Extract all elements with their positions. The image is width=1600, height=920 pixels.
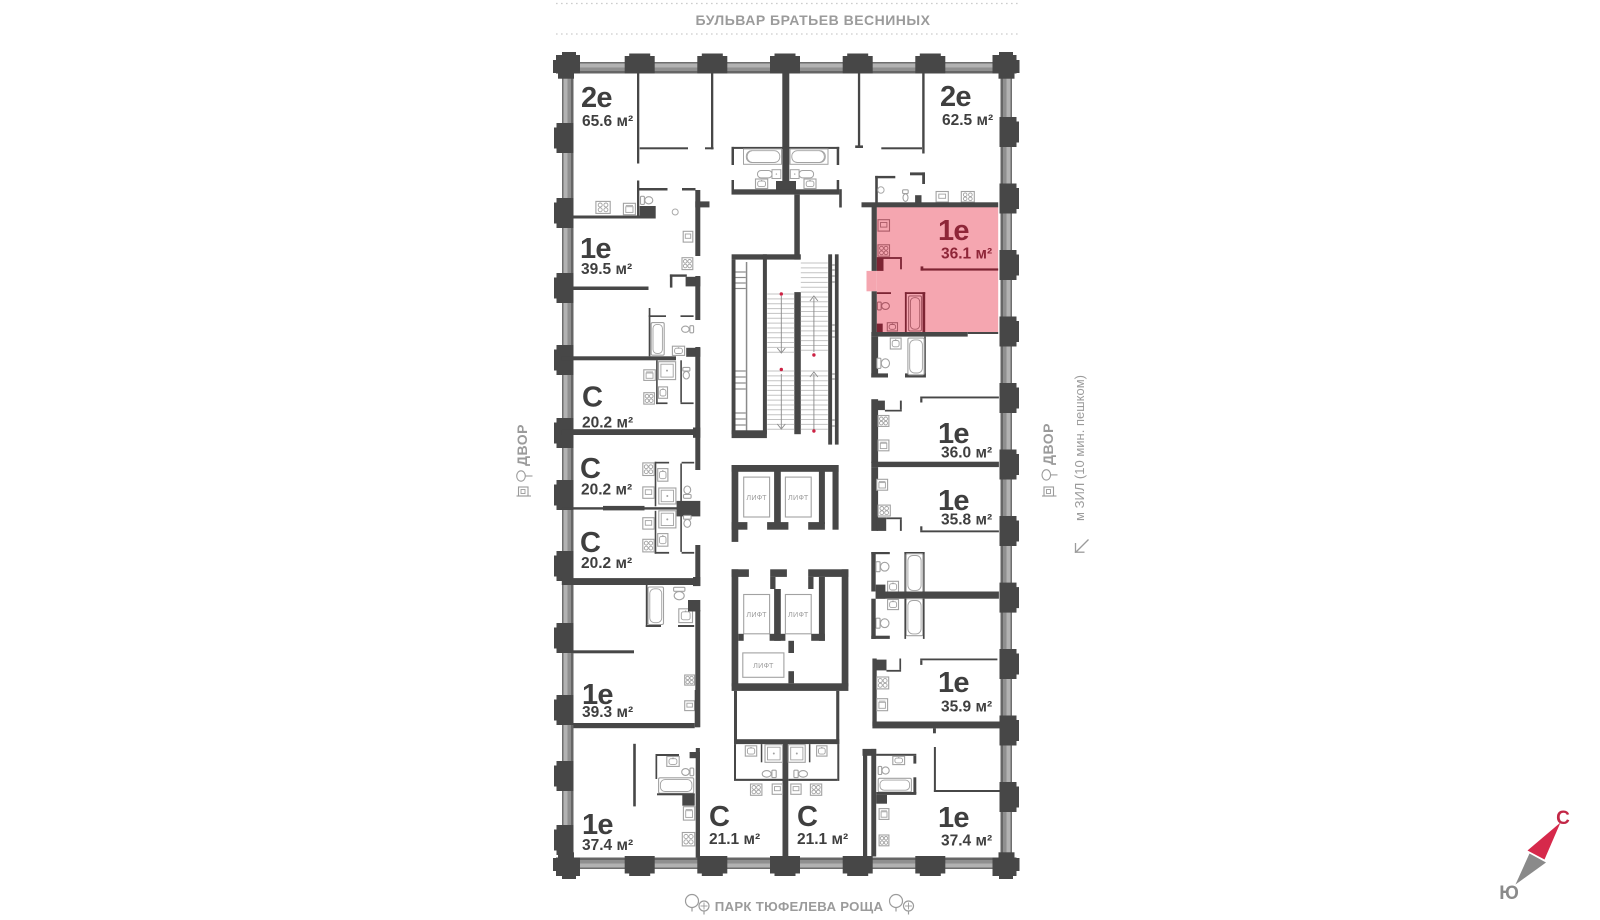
svg-text:21.1 м²: 21.1 м² <box>797 831 848 848</box>
svg-text:ЛИФТ: ЛИФТ <box>746 610 767 619</box>
svg-text:20.2 м²: 20.2 м² <box>582 415 633 432</box>
svg-text:35.9 м²: 35.9 м² <box>941 699 992 716</box>
svg-text:62.5 м²: 62.5 м² <box>942 112 993 129</box>
svg-text:С: С <box>580 453 601 485</box>
svg-text:Ю: Ю <box>1499 883 1519 904</box>
svg-text:С: С <box>797 801 818 833</box>
svg-text:С: С <box>709 801 730 833</box>
svg-text:37.4 м²: 37.4 м² <box>941 833 992 850</box>
svg-text:1е: 1е <box>938 215 969 247</box>
svg-text:21.1 м²: 21.1 м² <box>709 831 760 848</box>
svg-text:ЛИФТ: ЛИФТ <box>788 610 809 619</box>
svg-text:С: С <box>582 382 603 414</box>
svg-text:ДВОР: ДВОР <box>1040 423 1056 465</box>
svg-text:ЛИФТ: ЛИФТ <box>788 493 809 502</box>
svg-text:2е: 2е <box>940 81 971 113</box>
svg-text:ДВОР: ДВОР <box>514 424 530 466</box>
svg-text:ПАРК ТЮФЕЛЕВА РОЩА: ПАРК ТЮФЕЛЕВА РОЩА <box>715 899 884 914</box>
svg-text:2е: 2е <box>581 82 612 114</box>
svg-text:39.3 м²: 39.3 м² <box>582 704 633 721</box>
svg-text:39.5 м²: 39.5 м² <box>581 261 632 278</box>
svg-text:20.2 м²: 20.2 м² <box>581 482 632 499</box>
svg-text:1е: 1е <box>938 667 969 699</box>
svg-text:БУЛЬВАР БРАТЬЕВ ВЕСНИНЫХ: БУЛЬВАР БРАТЬЕВ ВЕСНИНЫХ <box>696 12 931 28</box>
svg-text:ЛИФТ: ЛИФТ <box>746 493 767 502</box>
svg-text:м ЗИЛ (10 мин. пешком): м ЗИЛ (10 мин. пешком) <box>1072 375 1087 521</box>
svg-text:С: С <box>1556 808 1570 829</box>
svg-text:1е: 1е <box>938 802 969 834</box>
svg-text:36.0 м²: 36.0 м² <box>941 445 992 462</box>
svg-text:ЛИФТ: ЛИФТ <box>753 661 774 670</box>
svg-text:65.6 м²: 65.6 м² <box>582 113 633 130</box>
svg-text:20.2 м²: 20.2 м² <box>581 555 632 572</box>
svg-text:36.1 м²: 36.1 м² <box>941 246 992 263</box>
svg-text:35.8 м²: 35.8 м² <box>941 512 992 529</box>
svg-text:37.4 м²: 37.4 м² <box>582 837 633 854</box>
